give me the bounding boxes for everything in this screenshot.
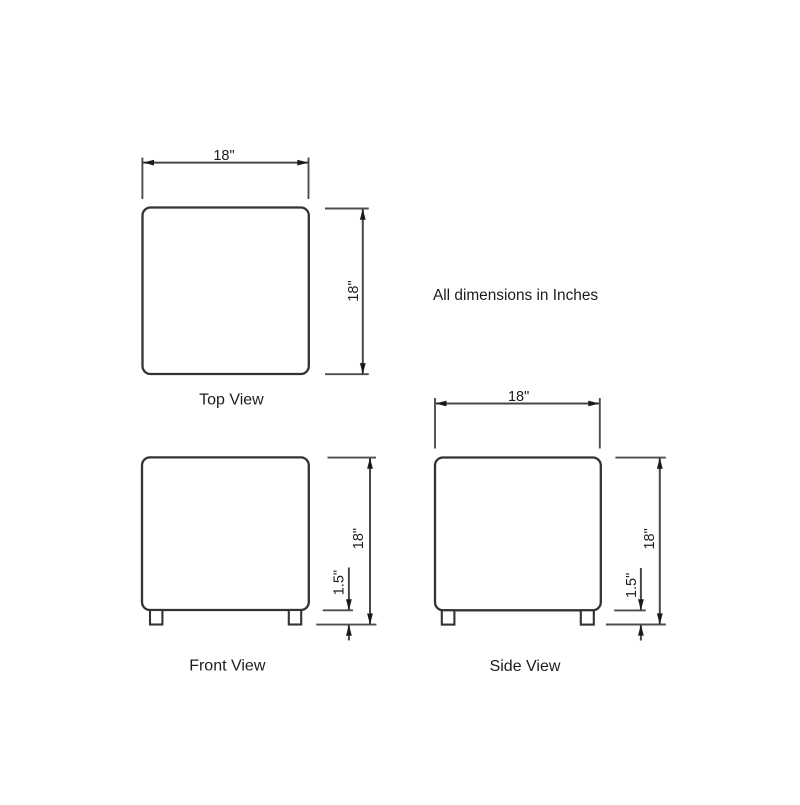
svg-text:18": 18" <box>508 389 529 405</box>
svg-text:All dimensions in Inches: All dimensions in Inches <box>433 287 598 304</box>
svg-text:Side View: Side View <box>490 658 561 675</box>
svg-text:Top View: Top View <box>199 391 264 408</box>
svg-text:18": 18" <box>351 528 367 549</box>
svg-text:18": 18" <box>346 280 362 301</box>
svg-text:18": 18" <box>213 148 234 164</box>
svg-text:18": 18" <box>642 528 658 549</box>
svg-text:Front View: Front View <box>189 657 266 674</box>
svg-text:1.5": 1.5" <box>624 573 640 598</box>
svg-text:1.5": 1.5" <box>332 570 348 595</box>
